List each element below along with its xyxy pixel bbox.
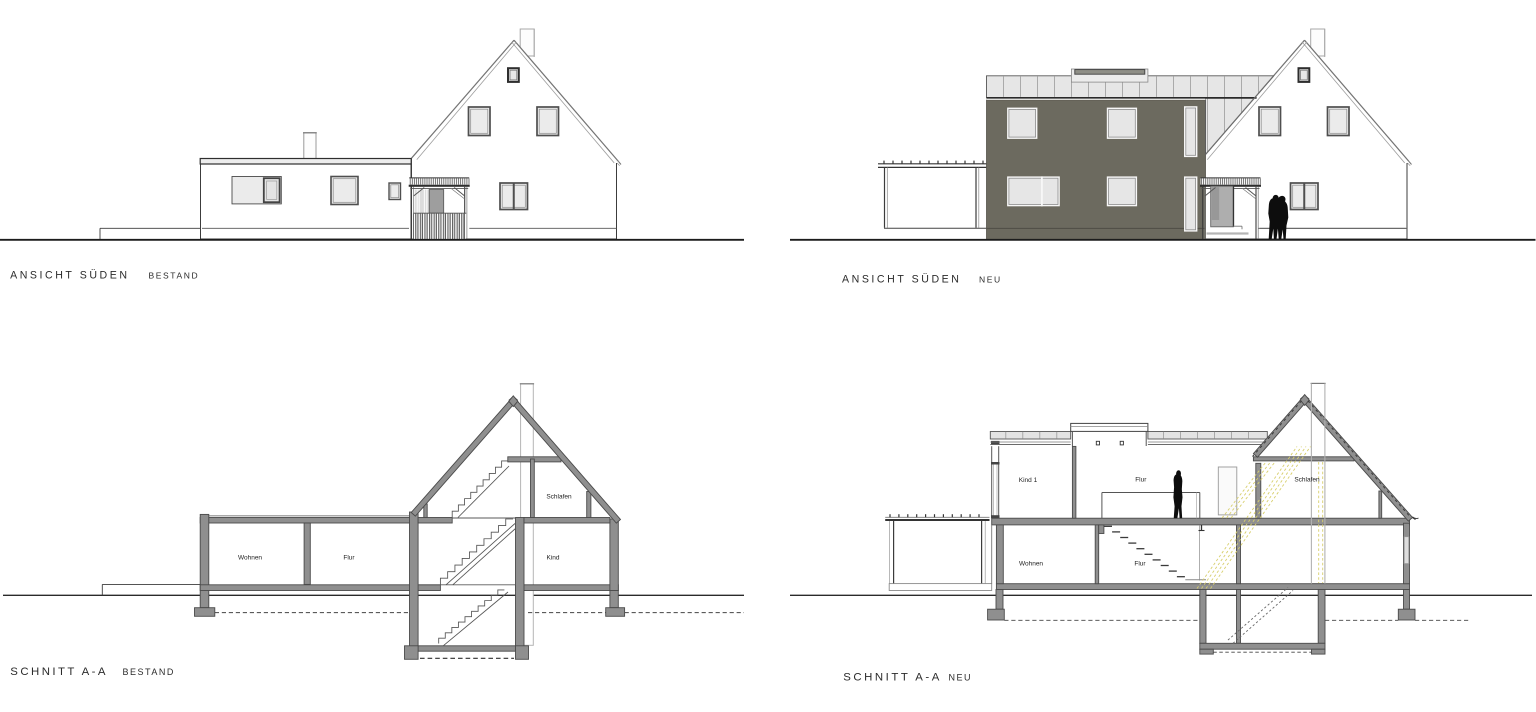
svg-text:ANSICHT SÜDEN: ANSICHT SÜDEN (842, 273, 961, 285)
svg-text:Kind: Kind (546, 555, 559, 562)
svg-text:Wohnen: Wohnen (238, 555, 262, 562)
svg-text:Schlafen: Schlafen (1294, 477, 1320, 484)
svg-text:Wohnen: Wohnen (1019, 561, 1043, 568)
svg-text:BESTAND: BESTAND (149, 270, 200, 280)
svg-text:Schlafen: Schlafen (546, 494, 572, 501)
svg-text:ANSICHT SÜDEN: ANSICHT SÜDEN (10, 269, 129, 281)
svg-text:NEU: NEU (979, 274, 1002, 284)
svg-text:Flur: Flur (343, 555, 355, 562)
svg-text:Flur: Flur (1135, 477, 1147, 484)
svg-text:BESTAND: BESTAND (123, 667, 175, 677)
svg-text:SCHNITT A-A: SCHNITT A-A (843, 672, 942, 684)
svg-text:Flur: Flur (1134, 561, 1146, 568)
svg-text:NEU: NEU (949, 673, 973, 683)
svg-text:Kind 1: Kind 1 (1019, 477, 1038, 484)
svg-text:SCHNITT A-A: SCHNITT A-A (10, 666, 108, 678)
